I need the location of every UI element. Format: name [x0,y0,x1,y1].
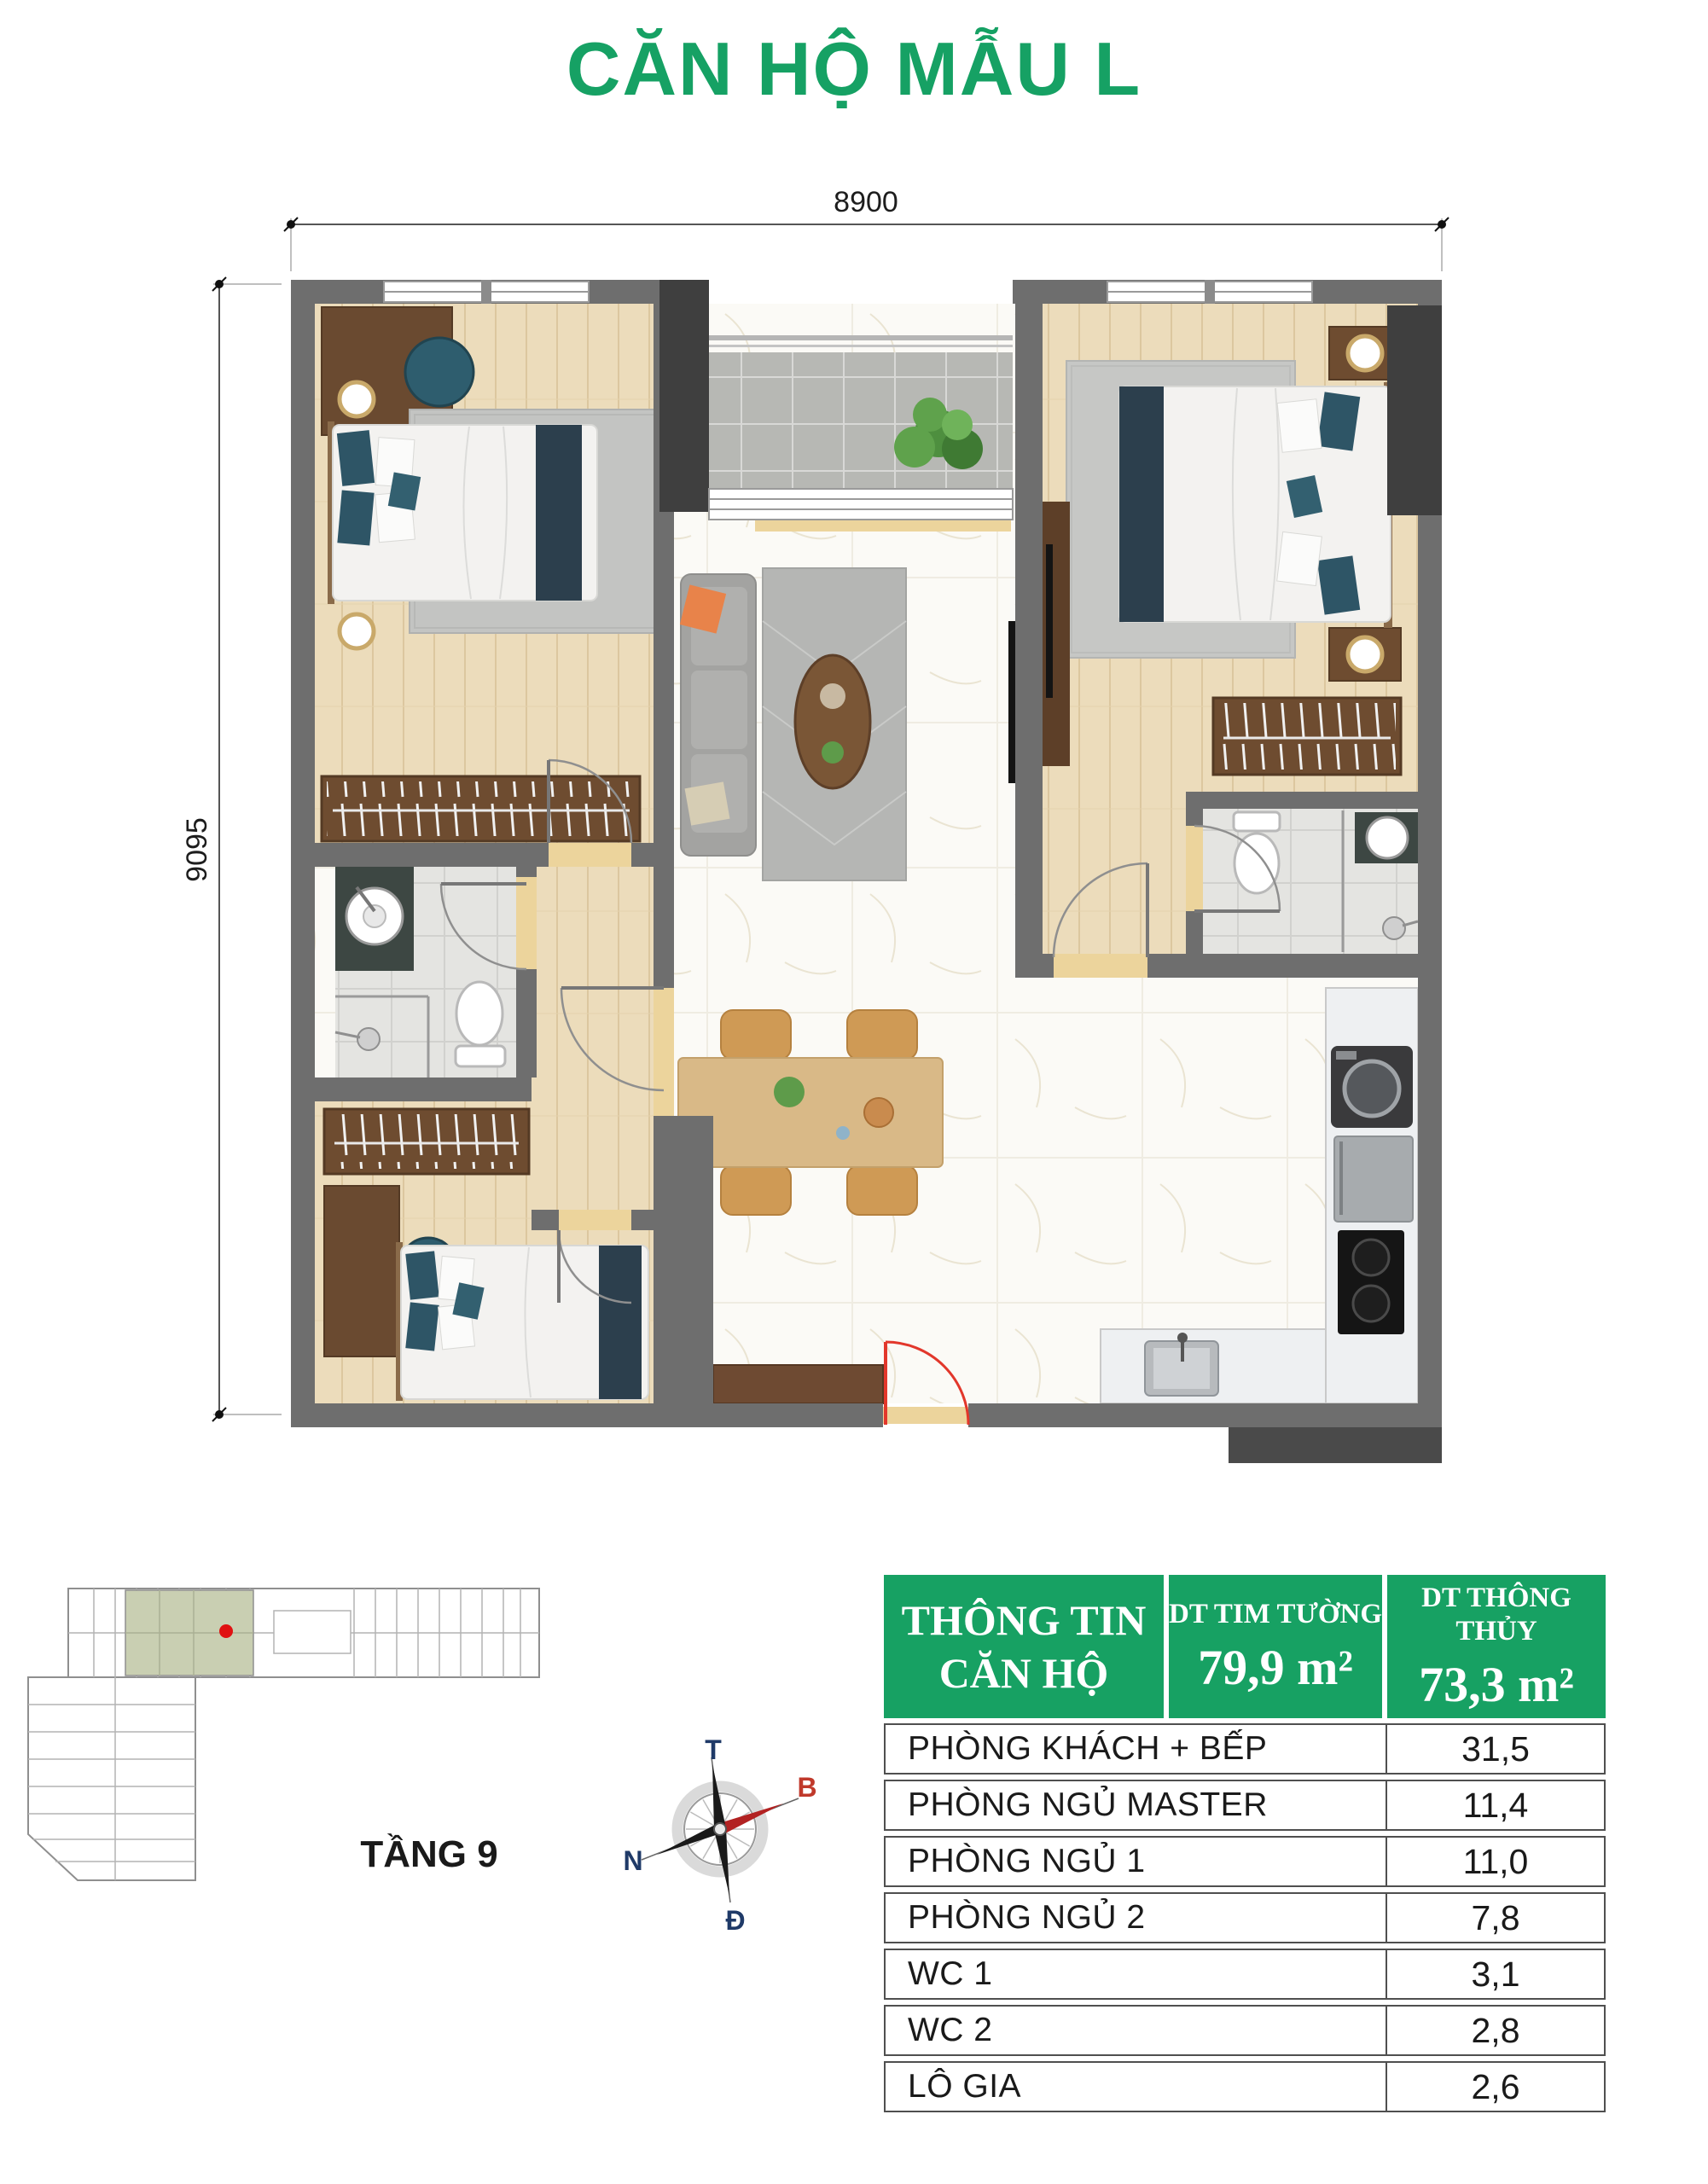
header-gross-area-cell: DT TIM TƯỜNG 79,9 m² [1169,1575,1382,1718]
dining-chair [847,1165,917,1215]
toilet-bowl [1235,834,1279,893]
dining-chair [721,1010,791,1060]
coffee-table [795,655,870,788]
compass: T B N Đ [616,1734,829,1960]
fridge [1334,1136,1413,1222]
room-label: LÔ GIA [886,2063,1386,2111]
room-area: 31,5 [1386,1725,1604,1773]
unit-location-dot [219,1624,233,1638]
cup [836,1126,850,1140]
desk [324,1186,399,1356]
chair [405,338,473,406]
page: CĂN HỘ MẪU L [0,0,1708,2184]
room-label: PHÒNG NGỦ 2 [886,1894,1386,1942]
pillow [337,490,374,545]
washer-panel [1336,1051,1357,1060]
bed-runner [599,1246,642,1399]
compass-label-north: B [797,1772,816,1803]
bed-runner [536,425,582,601]
floor-label: TẦNG 9 [360,1833,497,1875]
pillow [337,430,375,486]
room-label: PHÒNG KHÁCH + BẾP [886,1725,1386,1773]
floor-plan: 8900 9095 [128,143,1527,1478]
floor-plan-svg: 8900 9095 [128,143,1527,1474]
key-plan-svg: TẦNG 9 [21,1577,567,1901]
table-row: PHÒNG KHÁCH + BẾP 31,5 [884,1723,1606,1774]
room-area: 11,4 [1386,1781,1604,1829]
burner [1353,1286,1389,1321]
building-left-wing [28,1677,195,1880]
room-area: 7,8 [1386,1894,1604,1942]
table-plant [822,741,844,764]
compass-hub [714,1823,726,1835]
pillow [1317,392,1360,450]
page-title: CĂN HỘ MẪU L [0,26,1708,113]
dining-chair [847,1010,917,1060]
dimension-left-label: 9095 [181,817,213,882]
bed-runner [1119,386,1164,622]
lamp [1348,336,1382,370]
pillow [1277,531,1322,585]
table-row: PHÒNG NGỦ MASTER 11,4 [884,1780,1606,1831]
sofa-cushion [691,671,747,749]
room-area: 11,0 [1386,1838,1604,1885]
table-decor [820,683,845,709]
compass-label-east: Đ [725,1905,745,1936]
tv [1046,544,1053,698]
washer-door [1345,1061,1399,1116]
net-area-label: DT THÔNG THỦY [1387,1582,1606,1649]
apartment-info-table: THÔNG TIN CĂN HỘ DT TIM TƯỜNG 79,9 m² DT… [884,1575,1606,2112]
header-title-cell: THÔNG TIN CĂN HỘ [884,1575,1164,1718]
compass-label-west: T [705,1734,722,1765]
header-title-line1: THÔNG TIN [884,1594,1164,1647]
tv [1008,621,1015,783]
basin [1367,817,1408,858]
table-row: PHÒNG NGỦ 1 11,0 [884,1836,1606,1887]
room-area: 2,6 [1386,2063,1604,2111]
pillow [1317,555,1360,614]
table-row: WC 1 3,1 [884,1949,1606,2000]
toilet-bowl [456,982,503,1045]
dimension-top-label: 8900 [834,186,898,218]
toilet-tank [456,1046,505,1066]
balcony-slider [709,489,1013,520]
exterior-ledge [1229,1427,1442,1463]
room-area: 2,8 [1386,2007,1604,2054]
shoe-cabinet [713,1365,883,1403]
pillow [1277,399,1322,452]
pillow [388,473,421,511]
room-label: WC 2 [886,2007,1386,2054]
table-plant [774,1077,805,1107]
net-area-value: 73,3 m² [1387,1658,1606,1712]
burner [1353,1240,1389,1275]
table-row: LÔ GIA 2,6 [884,2061,1606,2112]
shower-head [1383,917,1405,939]
room-area: 3,1 [1386,1950,1604,1998]
shower-head [357,1028,380,1050]
table-row: PHÒNG NGỦ 2 7,8 [884,1892,1606,1943]
compass-label-south: N [623,1845,642,1876]
tray [340,614,374,648]
room-label: WC 1 [886,1950,1386,1998]
header-net-area-cell: DT THÔNG THỦY 73,3 m² [1387,1575,1606,1718]
dining-chair [721,1165,791,1215]
toilet-tank [1234,812,1280,831]
room-label: PHÒNG NGỦ MASTER [886,1781,1386,1829]
room-label: PHÒNG NGỦ 1 [886,1838,1386,1885]
pillow [405,1251,439,1299]
gross-area-value: 79,9 m² [1169,1641,1382,1695]
lamp [1348,637,1382,671]
gross-area-label: DT TIM TƯỜNG [1169,1598,1382,1632]
header-title-line2: CĂN HỘ [884,1647,1164,1700]
table-header: THÔNG TIN CĂN HỘ DT TIM TƯỜNG 79,9 m² DT… [884,1575,1606,1718]
dining-table [678,1058,943,1167]
pillow [405,1302,439,1350]
tray [340,382,374,416]
bowl [864,1098,893,1127]
key-plan: TẦNG 9 [21,1577,567,1905]
table-row: WC 2 2,8 [884,2005,1606,2056]
compass-svg: T B N Đ [616,1734,829,1955]
beige-pillow [685,781,730,825]
